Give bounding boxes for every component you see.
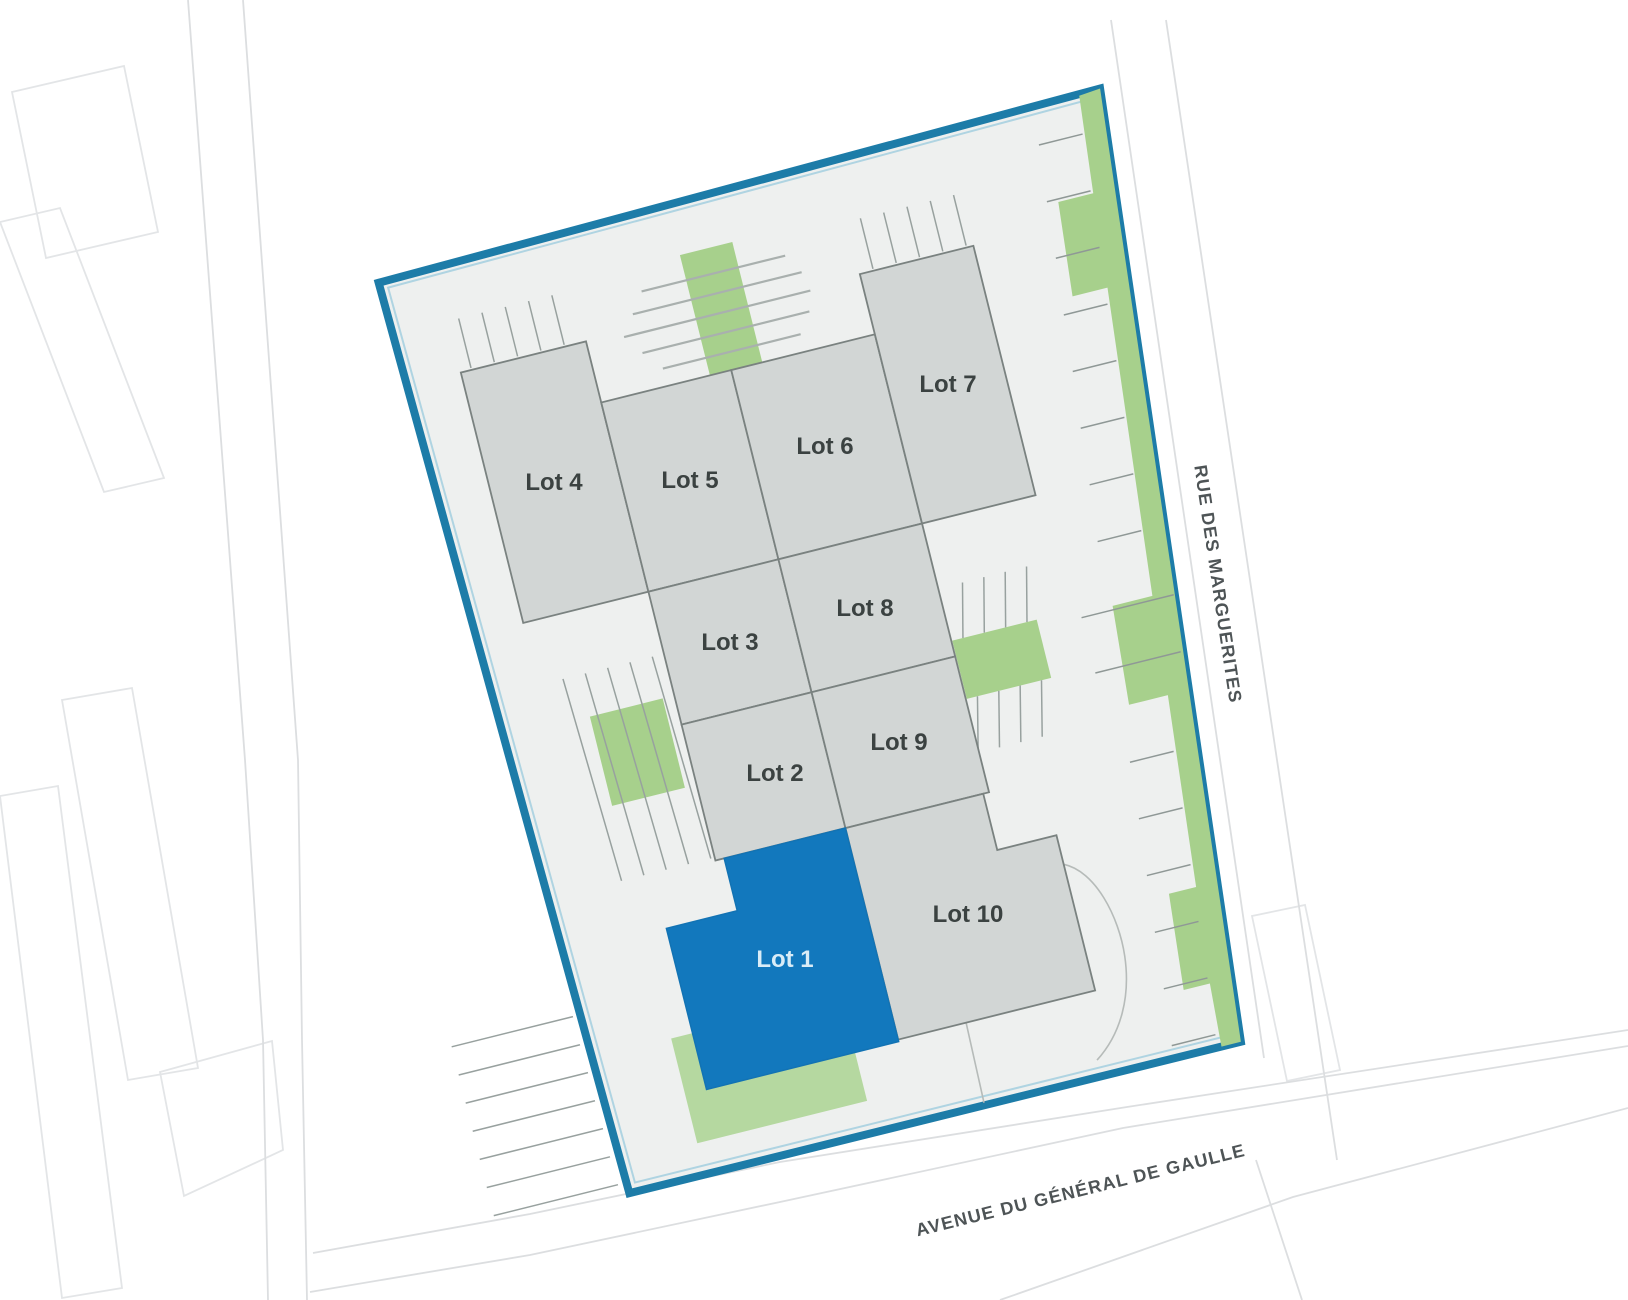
lot-10-label: Lot 10 (933, 901, 1004, 928)
road-west-line-2 (243, 0, 307, 1300)
lot-9-label: Lot 9 (870, 729, 927, 756)
lot-5-label: Lot 5 (661, 467, 718, 494)
neighbor-parcel-mid-left (62, 688, 198, 1080)
neighbor-parcel-low-left (0, 786, 122, 1298)
lot-8-label: Lot 8 (836, 595, 893, 622)
lot-3-label: Lot 3 (701, 629, 758, 656)
lot-7-label: Lot 7 (919, 371, 976, 398)
lot-1-label: Lot 1 (756, 946, 813, 973)
site-plan-map: Lot 1 Lot 2 Lot 3 Lot 4 Lot 5 Lot 6 Lot … (0, 0, 1628, 1300)
lot-4-label: Lot 4 (525, 469, 583, 496)
lot-6-label: Lot 6 (796, 433, 853, 460)
neighbor-parcel-bottom-right (1252, 905, 1340, 1081)
neighbor-parcel-top-left-1 (12, 66, 158, 258)
road-east-bend (1256, 1160, 1302, 1300)
lot-2-label: Lot 2 (746, 760, 803, 787)
neighbor-parcel-top-left-2 (0, 208, 164, 492)
road-south-line-3 (1000, 1108, 1628, 1300)
street-label-avenue-general-de-gaulle: AVENUE DU GÉNÉRAL DE GAULLE (913, 1139, 1247, 1240)
road-west-line-1 (188, 0, 268, 1300)
site-rotated-frame (265, 88, 1332, 1227)
